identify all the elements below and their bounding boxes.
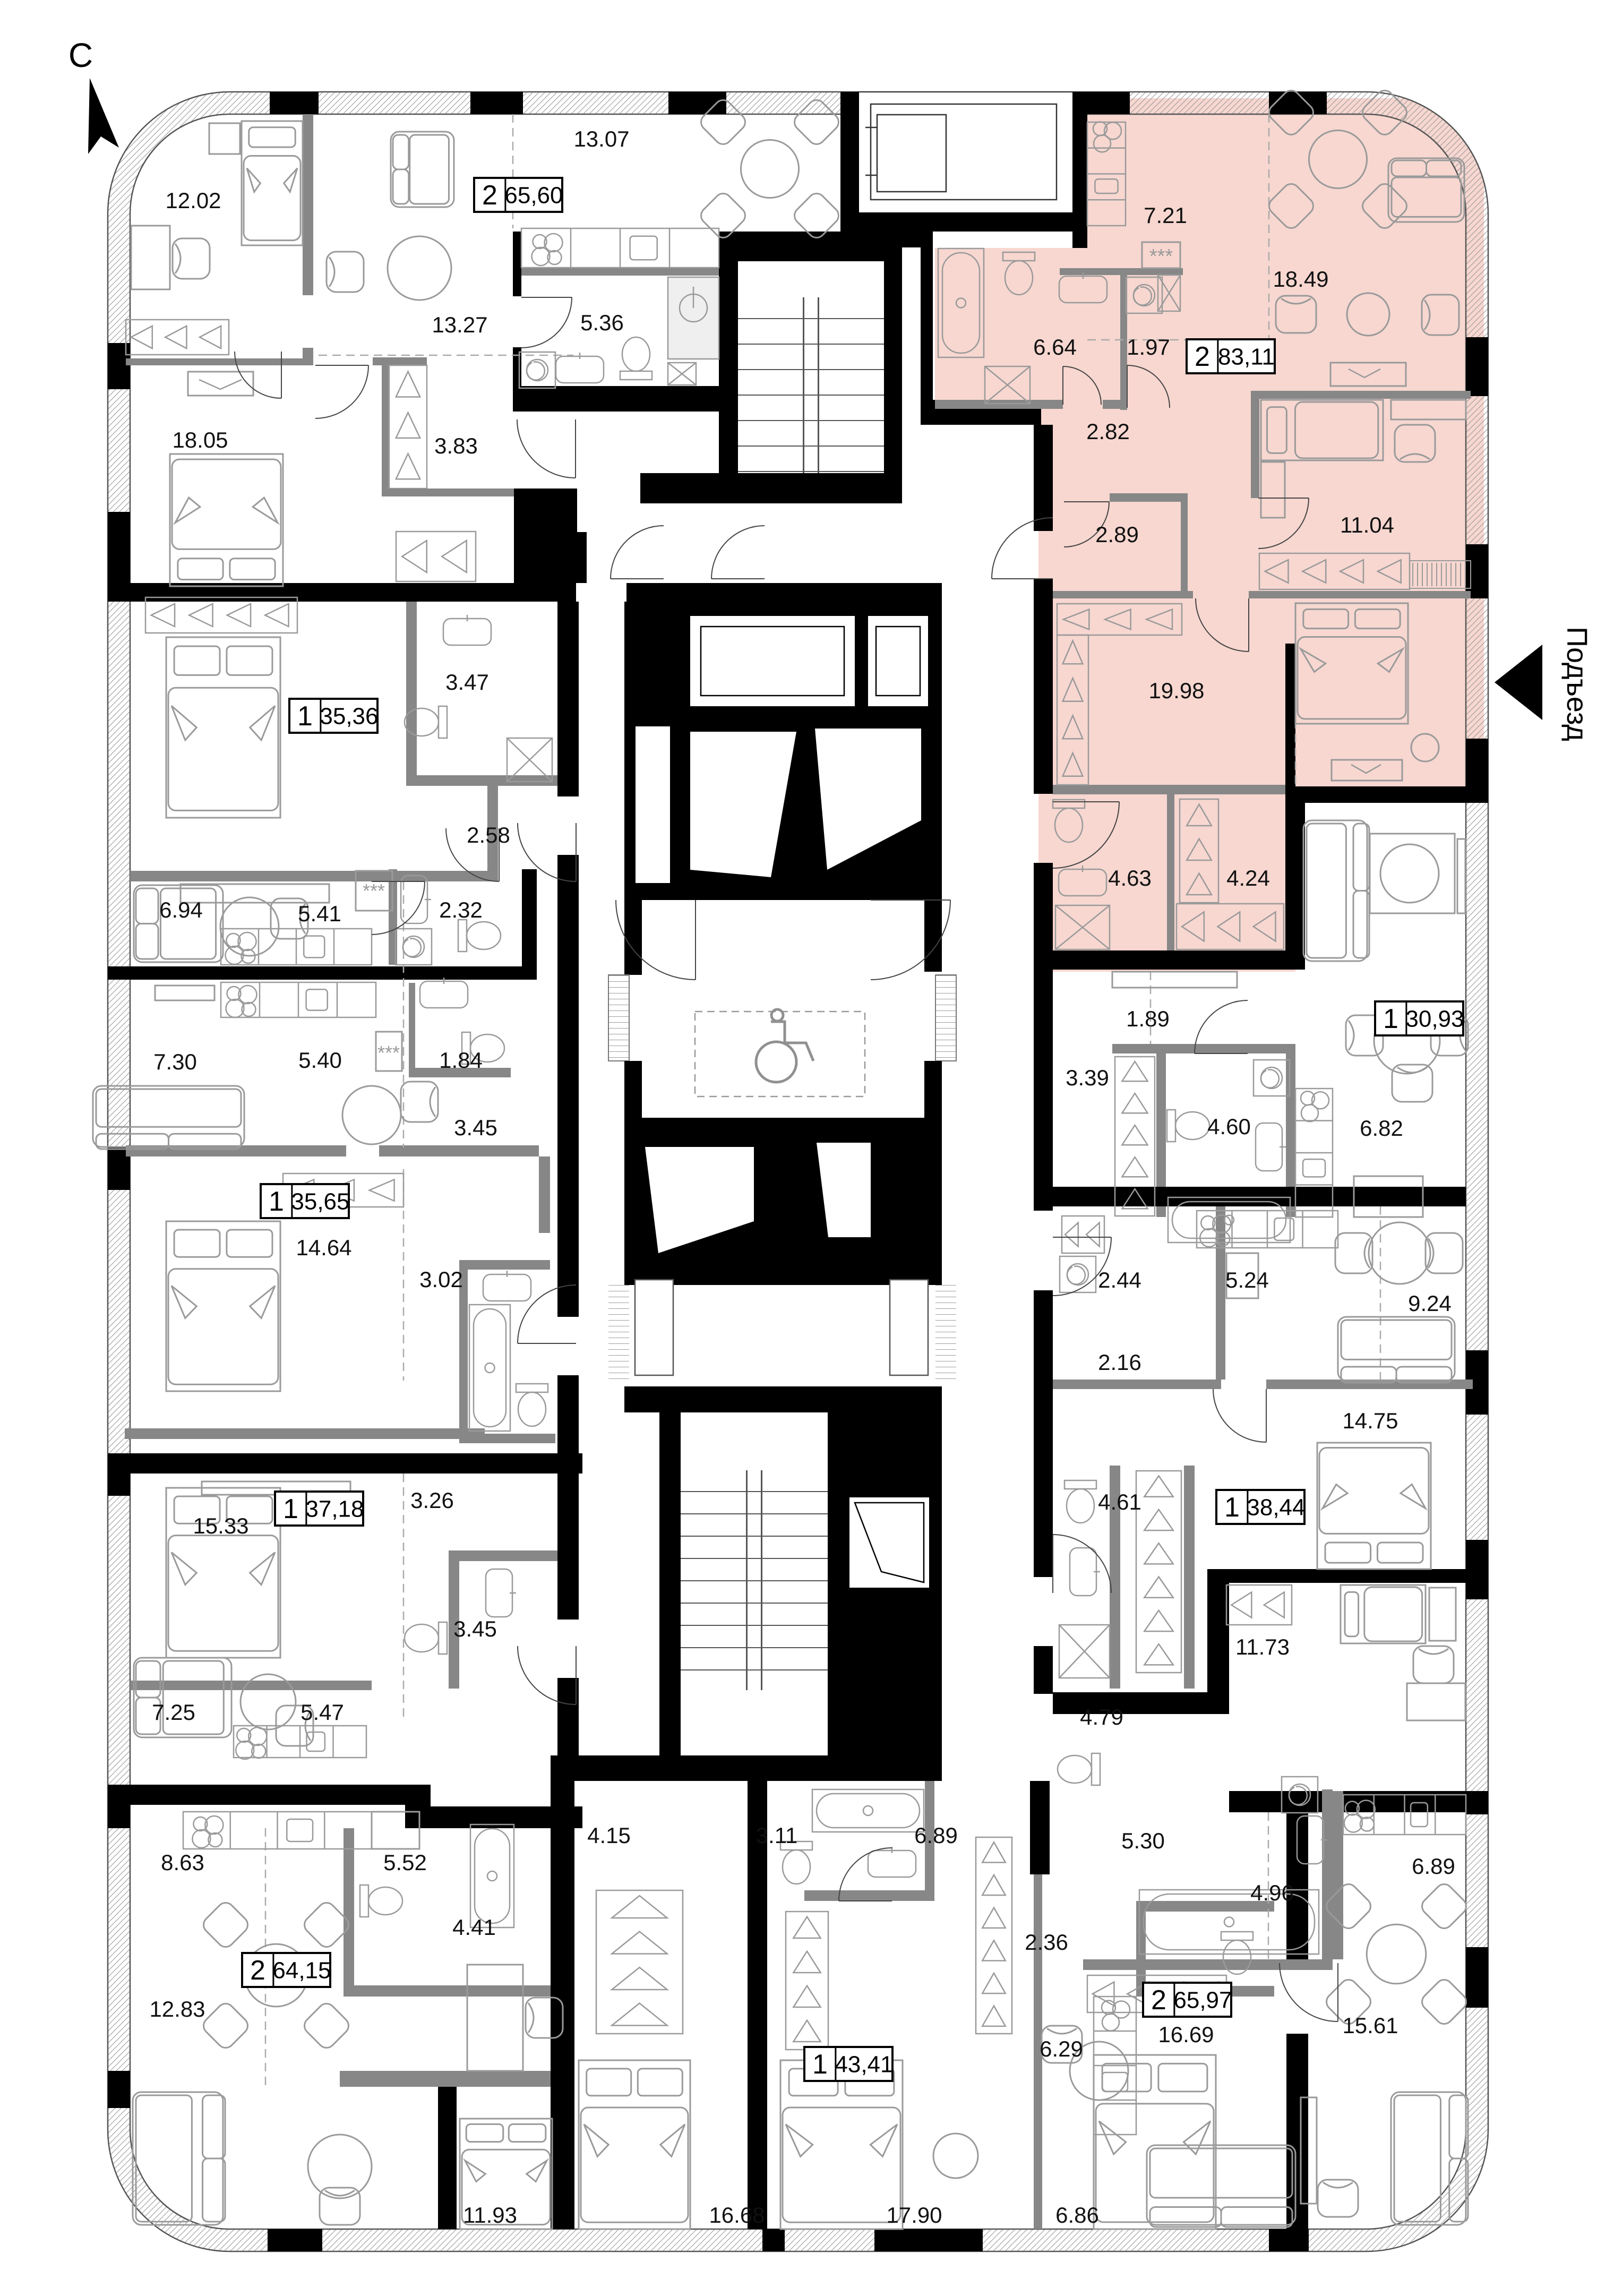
svg-text:35,36: 35,36 <box>320 703 378 729</box>
svg-text:13.27: 13.27 <box>432 312 487 337</box>
svg-text:6.29: 6.29 <box>1040 2036 1083 2061</box>
svg-text:1: 1 <box>812 2049 828 2080</box>
svg-text:38,44: 38,44 <box>1247 1494 1305 1520</box>
svg-text:***: *** <box>377 1042 400 1064</box>
svg-text:2.44: 2.44 <box>1098 1267 1141 1292</box>
svg-text:15.33: 15.33 <box>193 1513 248 1538</box>
svg-text:3.11: 3.11 <box>756 1823 798 1848</box>
svg-text:3.45: 3.45 <box>454 1115 497 1140</box>
svg-text:11.73: 11.73 <box>1235 1634 1290 1659</box>
svg-text:16.68: 16.68 <box>709 2203 765 2228</box>
svg-text:1.84: 1.84 <box>439 1048 483 1073</box>
svg-text:5.47: 5.47 <box>301 1700 344 1725</box>
svg-text:1.89: 1.89 <box>1126 1006 1170 1031</box>
svg-text:3.47: 3.47 <box>445 670 489 695</box>
svg-text:2.32: 2.32 <box>439 897 483 922</box>
svg-text:4.61: 4.61 <box>1098 1489 1141 1514</box>
svg-text:19.98: 19.98 <box>1148 678 1204 703</box>
svg-text:4.79: 4.79 <box>1080 1704 1123 1729</box>
svg-text:3.02: 3.02 <box>419 1267 463 1292</box>
svg-text:5.30: 5.30 <box>1121 1828 1165 1853</box>
svg-text:3.45: 3.45 <box>453 1616 497 1641</box>
svg-text:1: 1 <box>297 701 313 732</box>
svg-text:12.02: 12.02 <box>165 188 221 213</box>
svg-text:30,93: 30,93 <box>1405 1006 1464 1032</box>
svg-text:Подъезд: Подъезд <box>1561 627 1593 741</box>
svg-text:1: 1 <box>1224 1492 1240 1523</box>
svg-text:4.15: 4.15 <box>587 1823 631 1848</box>
svg-text:3.39: 3.39 <box>1066 1065 1109 1090</box>
svg-text:14.75: 14.75 <box>1342 1408 1398 1433</box>
svg-text:5.40: 5.40 <box>298 1048 342 1073</box>
svg-text:1.97: 1.97 <box>1127 335 1170 359</box>
svg-text:17.90: 17.90 <box>886 2203 942 2228</box>
svg-text:2.58: 2.58 <box>467 823 510 847</box>
svg-text:2: 2 <box>1195 341 1210 372</box>
svg-text:9.24: 9.24 <box>1408 1291 1452 1316</box>
svg-text:2.36: 2.36 <box>1025 1930 1068 1955</box>
svg-text:5.41: 5.41 <box>298 901 341 926</box>
svg-text:8.63: 8.63 <box>161 1850 204 1875</box>
svg-text:18.49: 18.49 <box>1273 267 1328 292</box>
svg-text:2.16: 2.16 <box>1098 1350 1141 1375</box>
svg-text:35,65: 35,65 <box>291 1188 349 1214</box>
svg-text:65,60: 65,60 <box>504 182 563 208</box>
svg-text:6.64: 6.64 <box>1033 335 1077 359</box>
svg-text:1: 1 <box>1383 1004 1398 1034</box>
svg-text:2: 2 <box>482 180 497 211</box>
svg-text:13.07: 13.07 <box>573 126 629 151</box>
svg-text:14.64: 14.64 <box>296 1235 351 1260</box>
svg-text:7.25: 7.25 <box>152 1700 195 1725</box>
svg-text:5.24: 5.24 <box>1225 1267 1269 1292</box>
svg-text:4.41: 4.41 <box>452 1915 496 1940</box>
svg-text:7.30: 7.30 <box>153 1049 197 1074</box>
svg-text:4.63: 4.63 <box>1108 866 1152 890</box>
svg-text:2: 2 <box>1151 1985 1166 2016</box>
svg-text:12.83: 12.83 <box>149 1997 205 2021</box>
svg-text:6.89: 6.89 <box>1412 1854 1455 1879</box>
svg-text:***: *** <box>363 880 385 902</box>
svg-text:2: 2 <box>250 1955 265 1986</box>
svg-text:83,11: 83,11 <box>1218 344 1275 370</box>
svg-text:2.82: 2.82 <box>1086 419 1130 444</box>
svg-text:7.21: 7.21 <box>1144 203 1187 228</box>
svg-text:5.36: 5.36 <box>580 310 624 335</box>
svg-text:11.04: 11.04 <box>1340 512 1394 537</box>
svg-text:4.60: 4.60 <box>1207 1114 1251 1139</box>
svg-text:11.93: 11.93 <box>463 2203 517 2228</box>
svg-text:4.96: 4.96 <box>1250 1880 1294 1905</box>
svg-text:64,15: 64,15 <box>272 1957 331 1983</box>
svg-text:5.52: 5.52 <box>383 1850 427 1875</box>
svg-text:65,97: 65,97 <box>1173 1987 1232 2013</box>
svg-text:18.05: 18.05 <box>172 427 228 452</box>
svg-text:15.61: 15.61 <box>1342 2013 1398 2038</box>
svg-text:C: C <box>68 36 93 74</box>
svg-text:***: *** <box>1149 245 1173 268</box>
svg-text:1: 1 <box>283 1494 298 1524</box>
svg-text:1: 1 <box>269 1186 284 1217</box>
svg-text:3.83: 3.83 <box>434 433 478 458</box>
svg-text:37,18: 37,18 <box>305 1496 364 1522</box>
svg-text:6.89: 6.89 <box>914 1823 958 1848</box>
svg-text:3.26: 3.26 <box>410 1488 454 1513</box>
svg-text:43,41: 43,41 <box>835 2051 893 2077</box>
svg-text:2.89: 2.89 <box>1095 522 1139 547</box>
svg-text:16.69: 16.69 <box>1158 2022 1214 2047</box>
svg-text:6.94: 6.94 <box>159 897 203 922</box>
svg-text:6.82: 6.82 <box>1360 1116 1403 1141</box>
svg-text:4.24: 4.24 <box>1226 866 1270 890</box>
svg-text:6.86: 6.86 <box>1055 2203 1099 2228</box>
